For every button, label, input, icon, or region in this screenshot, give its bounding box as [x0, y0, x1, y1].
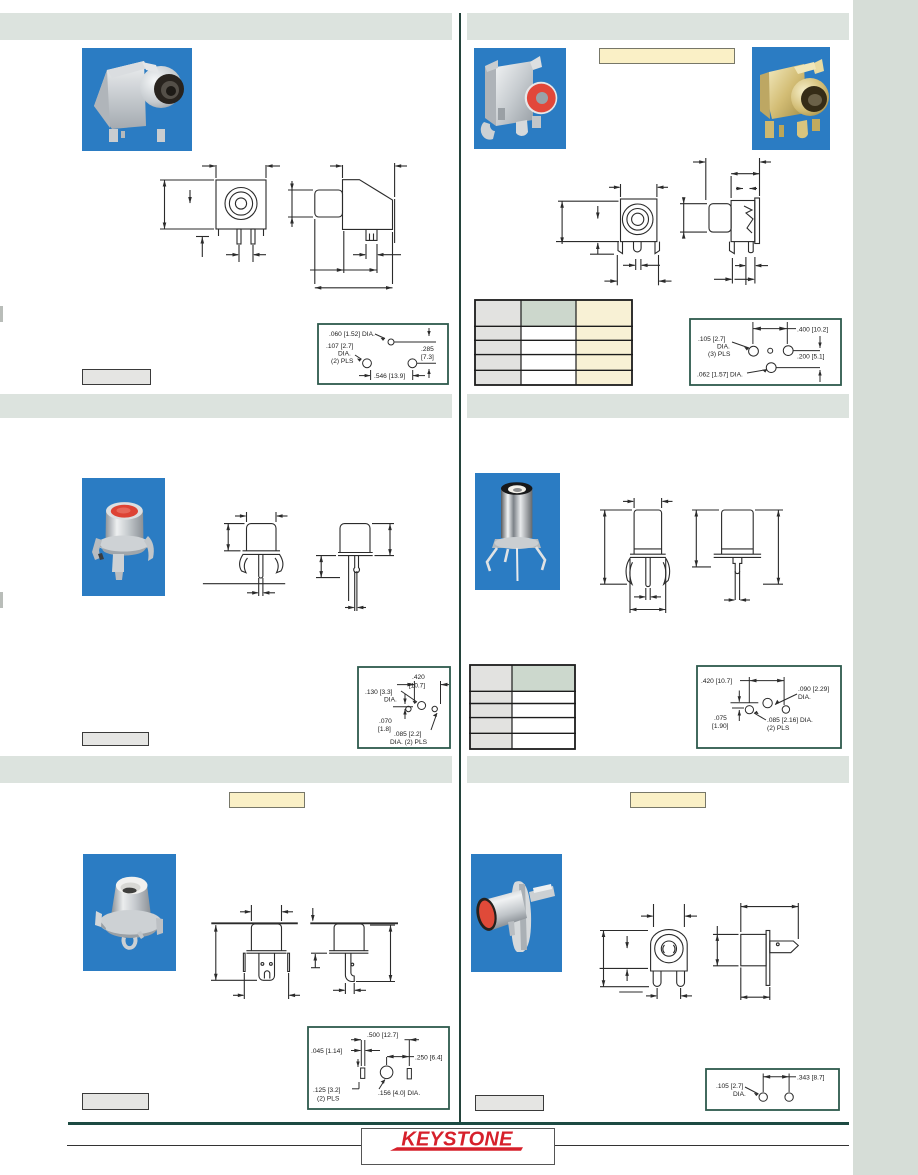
svg-text:[1.8]: [1.8]: [378, 726, 391, 733]
svg-text:.062 [1.57] DIA.: .062 [1.57] DIA.: [697, 372, 743, 379]
svg-text:.070: .070: [379, 718, 392, 725]
svg-text:.075: .075: [714, 715, 727, 722]
svg-text:[10.7]: [10.7]: [409, 683, 425, 690]
svg-text:[1.90]: [1.90]: [712, 723, 729, 730]
svg-text:(2) PLS: (2) PLS: [317, 1096, 340, 1103]
svg-text:DIA.: DIA.: [733, 1091, 746, 1098]
svg-text:DIA.: DIA.: [384, 697, 397, 704]
svg-text:.546 [13.9]: .546 [13.9]: [374, 373, 405, 380]
svg-text:.085 [2.2]: .085 [2.2]: [394, 731, 422, 738]
svg-text:.125 [3.2]: .125 [3.2]: [313, 1087, 341, 1094]
svg-text:.343 [8.7]: .343 [8.7]: [797, 1075, 825, 1082]
svg-text:.105 [2.7]: .105 [2.7]: [698, 336, 726, 343]
svg-text:.090 [2.29]: .090 [2.29]: [798, 686, 829, 693]
svg-text:DIA.: DIA.: [338, 351, 351, 358]
svg-text:.130 [3.3]: .130 [3.3]: [365, 689, 393, 696]
svg-text:DIA.: DIA.: [717, 344, 730, 351]
svg-text:(2) PLS: (2) PLS: [331, 358, 354, 365]
svg-text:.107 [2.7]: .107 [2.7]: [326, 343, 354, 350]
svg-text:(3) PLS: (3) PLS: [708, 351, 731, 358]
svg-text:DIA. (2) PLS: DIA. (2) PLS: [390, 739, 428, 746]
svg-text:.045 [1.14]: .045 [1.14]: [311, 1048, 342, 1055]
svg-text:.105 [2.7]: .105 [2.7]: [716, 1083, 744, 1090]
svg-text:.060 [1.52] DIA.: .060 [1.52] DIA.: [329, 331, 375, 338]
svg-text:(2) PLS: (2) PLS: [767, 725, 790, 732]
svg-text:.400 [10.2]: .400 [10.2]: [797, 327, 828, 334]
svg-text:.250 [6.4]: .250 [6.4]: [415, 1055, 443, 1062]
svg-text:.285: .285: [421, 346, 434, 353]
svg-text:.420 [10.7]: .420 [10.7]: [701, 678, 732, 685]
svg-text:.085 [2.16] DIA.: .085 [2.16] DIA.: [767, 717, 813, 724]
svg-text:.420: .420: [412, 674, 425, 681]
svg-text:.200 [5.1]: .200 [5.1]: [797, 354, 825, 361]
svg-text:[7.3]: [7.3]: [421, 354, 434, 361]
svg-text:DIA.: DIA.: [798, 694, 811, 701]
svg-text:.500 [12.7]: .500 [12.7]: [367, 1032, 398, 1039]
svg-text:KEYSTONE: KEYSTONE: [401, 1129, 513, 1151]
svg-text:.156 [4.0] DIA.: .156 [4.0] DIA.: [378, 1090, 420, 1097]
